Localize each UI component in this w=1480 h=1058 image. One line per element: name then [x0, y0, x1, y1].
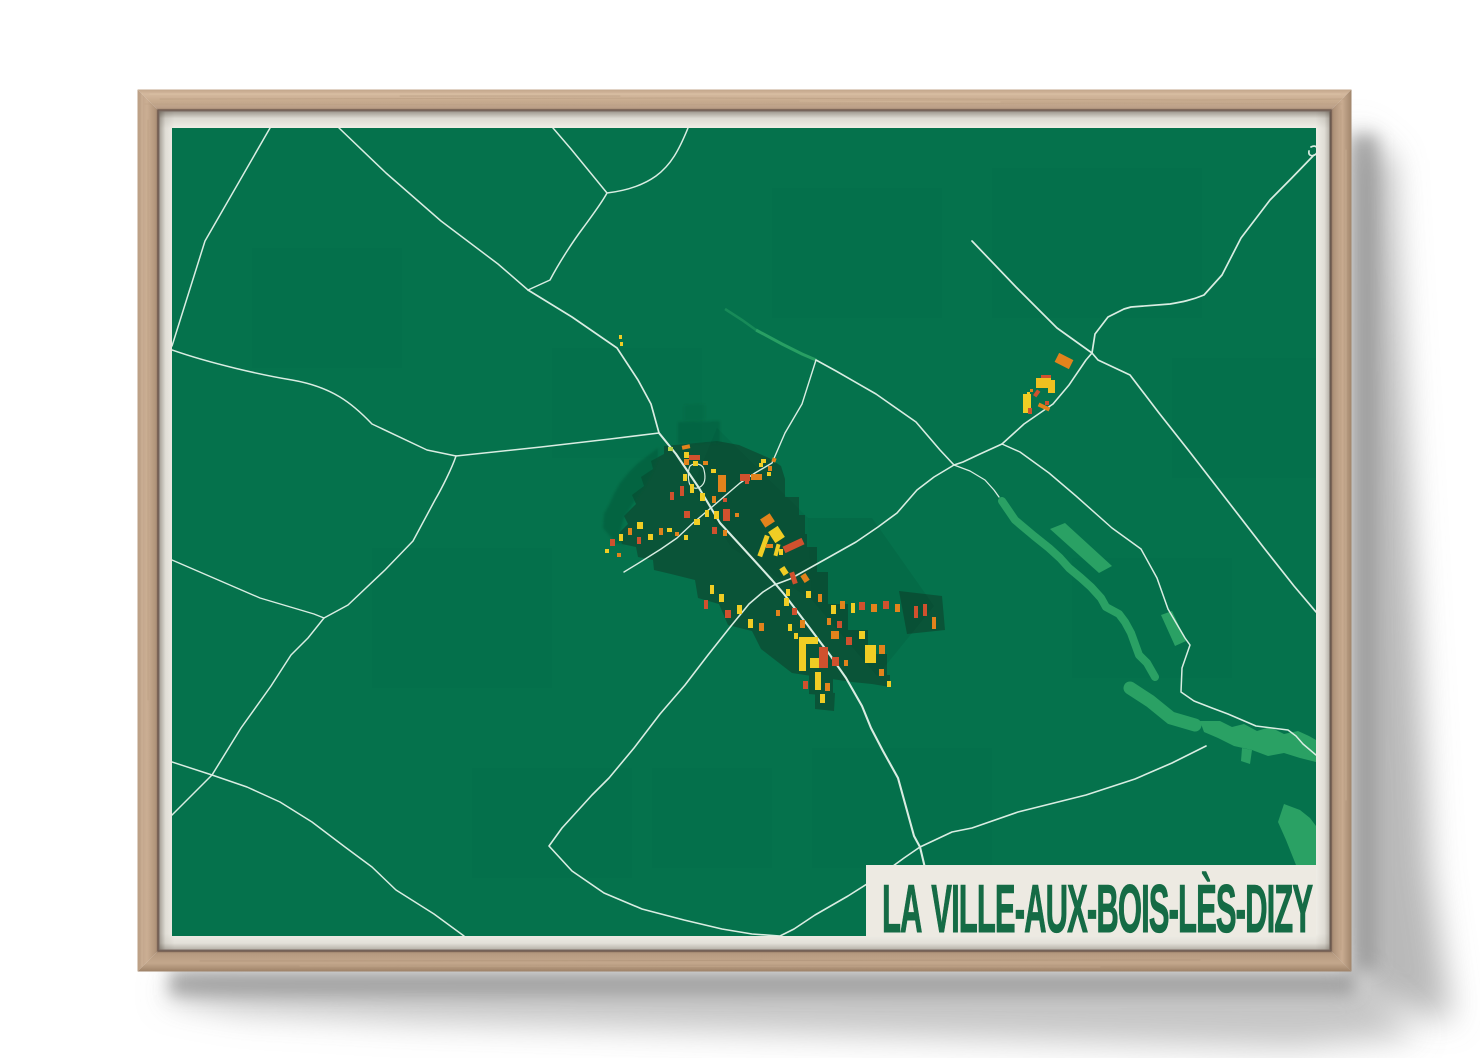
svg-text:LA VILLE-AUX-BOIS-LÈS-DIZY: LA VILLE-AUX-BOIS-LÈS-DIZY: [882, 871, 1313, 947]
